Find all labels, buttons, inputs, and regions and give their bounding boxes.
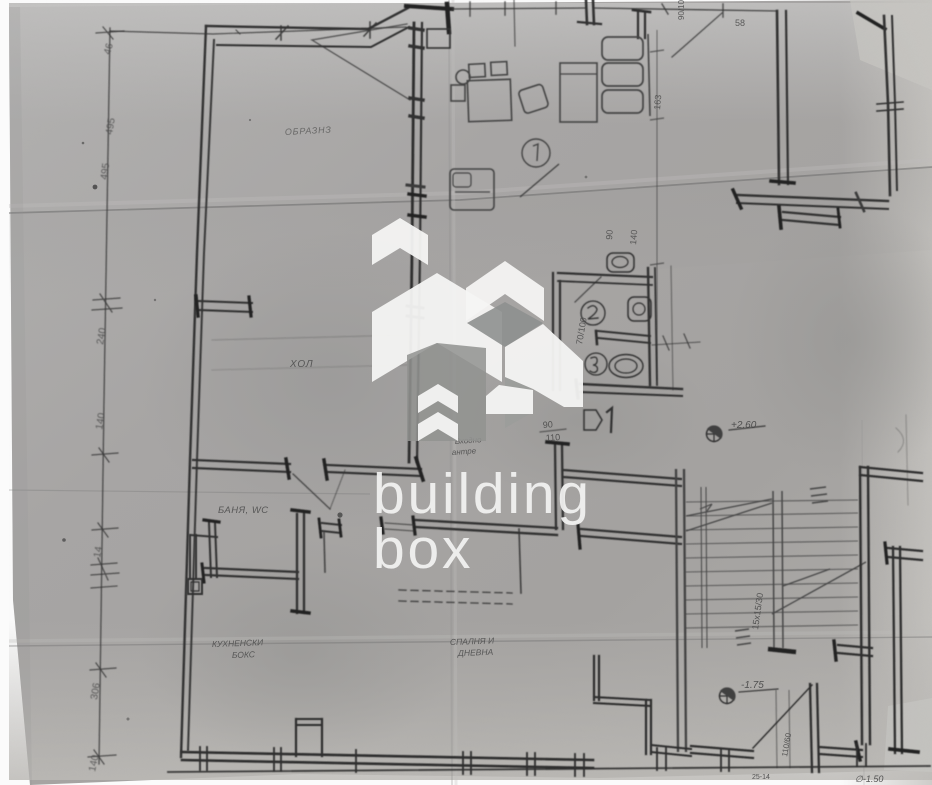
svg-text:90: 90 xyxy=(542,419,553,430)
svg-text:110: 110 xyxy=(545,432,560,443)
svg-text:25-14: 25-14 xyxy=(752,774,770,781)
svg-text:90: 90 xyxy=(604,229,615,240)
svg-text:90/100: 90/100 xyxy=(677,0,686,20)
svg-text:140: 140 xyxy=(628,229,639,245)
svg-text:антре: антре xyxy=(452,446,477,457)
svg-text:58: 58 xyxy=(735,18,745,28)
svg-text:box: box xyxy=(373,517,473,581)
svg-text:∅-1.50: ∅-1.50 xyxy=(855,774,883,784)
svg-text:БАНЯ, WC: БАНЯ, WC xyxy=(218,505,269,516)
svg-text:ДНЕВНА: ДНЕВНА xyxy=(457,647,494,658)
svg-text:БОКС: БОКС xyxy=(232,649,256,660)
svg-text:163: 163 xyxy=(652,94,663,110)
svg-text:-1.75: -1.75 xyxy=(741,680,764,691)
svg-text:+2.60: +2.60 xyxy=(731,420,757,431)
svg-text:ХОЛ: ХОЛ xyxy=(289,359,314,370)
svg-text:СПАЛНЯ И: СПАЛНЯ И xyxy=(450,635,495,647)
svg-text:КУХНЕНСКИ: КУХНЕНСКИ xyxy=(212,637,265,649)
